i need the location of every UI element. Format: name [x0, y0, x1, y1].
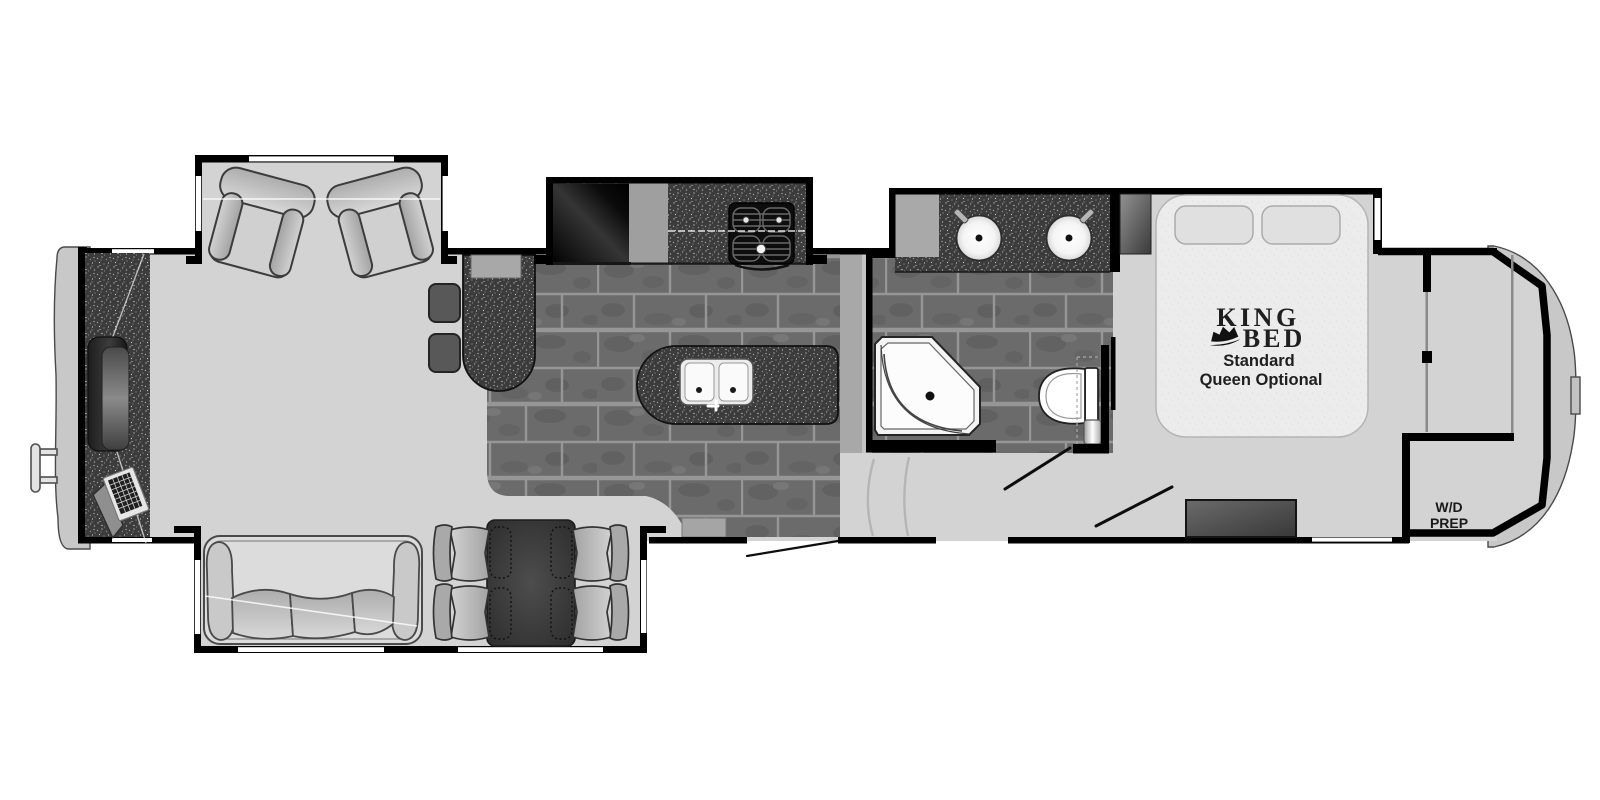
- svg-text:Standard: Standard: [1223, 352, 1295, 370]
- svg-text:BED: BED: [1243, 324, 1305, 353]
- svg-text:W/D: W/D: [1435, 499, 1462, 515]
- svg-text:PREP: PREP: [1430, 515, 1468, 531]
- svg-text:Queen Optional: Queen Optional: [1200, 371, 1323, 389]
